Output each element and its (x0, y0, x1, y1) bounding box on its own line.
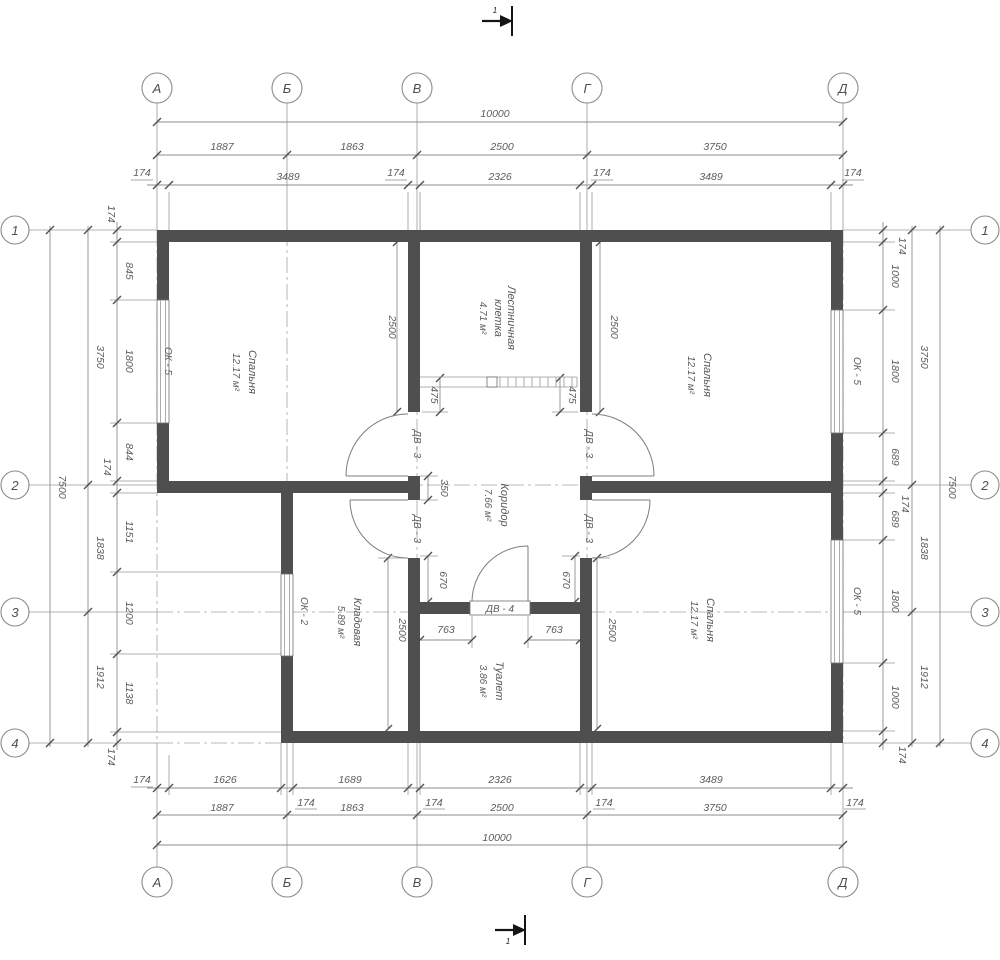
dim-label: 174 (133, 774, 151, 786)
room-label-bedroom-br: Спальня 12.17 м² (688, 598, 716, 642)
dim-label: 1800 (123, 349, 135, 373)
dim-label: 174 (595, 797, 613, 809)
dim-label: 1151 (123, 521, 135, 544)
dim-label: 10000 (480, 108, 509, 120)
axis-bubble-label: Б (283, 875, 292, 890)
dim-label: 1000 (889, 264, 901, 288)
dim-label: 1800 (889, 589, 901, 613)
room-label-bedroom-tr: Спальня 12.17 м² (685, 353, 713, 397)
room-area: 7.66 м² (482, 489, 493, 522)
axis-bubble-label: А (152, 81, 162, 96)
room-name: Туалет (493, 661, 505, 700)
axis-bubble-label: Б (283, 81, 292, 96)
wall-divider-right (592, 481, 831, 493)
dim-label: 174 (846, 797, 864, 809)
room-area: 12.17 м² (688, 601, 699, 640)
dim-label: 3489 (276, 171, 300, 183)
dim-label: 2500 (489, 141, 514, 153)
dim-label: 2500 (608, 314, 620, 339)
axis-bubble-label: 3 (11, 605, 19, 620)
dim-label: 7500 (56, 475, 68, 499)
wall-right-2 (831, 433, 843, 540)
dim-label: 350 (438, 479, 450, 497)
window-storage-ok2 (281, 574, 293, 656)
room-name: Коридор (498, 483, 510, 526)
wall-g-upper (580, 242, 592, 412)
stairs-symbol (420, 377, 577, 387)
axis-bubble-label: А (152, 875, 162, 890)
axis-bubble-label: 3 (981, 605, 989, 620)
axis-bubble-label: В (413, 81, 422, 96)
room-name: Лестничная (505, 285, 517, 350)
dim-label: 1863 (340, 141, 364, 153)
wall-v-stub (408, 476, 420, 500)
dim-label: 174 (133, 167, 151, 179)
dim-label: 174 (101, 458, 113, 476)
axis-bubble-label: 1 (11, 223, 18, 238)
axis-circles-right: 1 2 3 4 (971, 216, 999, 757)
floor-plan-page: 174 3489 174 2326 174 3489 174 1887 1863… (0, 0, 1000, 955)
axis-bubble-label: 2 (980, 478, 989, 493)
dim-label: 2500 (489, 802, 514, 814)
dim-label: 1912 (94, 665, 106, 689)
axis-bubble-label: Д (836, 81, 847, 96)
window-right-bottom-ok5 (831, 540, 843, 663)
dim-label: 174 (896, 746, 908, 764)
dim-label: 1200 (123, 601, 135, 625)
dim-label: 1800 (889, 359, 901, 383)
dim-label: 1838 (918, 536, 930, 560)
axis-circles-left: 1 2 3 4 (1, 216, 29, 757)
wall-divider-left (157, 481, 420, 493)
dim-label: 174 (387, 167, 405, 179)
axis-bubble-label: Д (836, 875, 847, 890)
dim-label: 3750 (703, 141, 727, 153)
section-number: 1 (493, 6, 497, 15)
room-area: 12.17 м² (685, 356, 696, 395)
axis-bubble-label: 4 (11, 736, 18, 751)
dim-label: 2500 (606, 617, 618, 642)
wall-right-1 (831, 230, 843, 310)
room-label-stairwell: Лестничная клетка 4.71 м² (477, 285, 517, 350)
wall-bottom (281, 731, 843, 743)
dim-label: 670 (560, 571, 572, 589)
wall-toilet-right (528, 602, 580, 614)
room-area: 4.71 м² (477, 302, 488, 335)
dim-label: 10000 (482, 832, 511, 844)
axis-bubble-label: 1 (981, 223, 988, 238)
window-tag: ОК - 5 (851, 587, 862, 616)
axis-bubble-label: Г (583, 81, 591, 96)
dimensions-left: 174 845 1800 844 174 1151 1200 1138 174 … (56, 205, 135, 766)
room-name: Спальня (701, 353, 713, 397)
room-label-storage: Кладовая 5.89 м² (335, 598, 363, 647)
axis-bubble-label: 2 (10, 478, 19, 493)
dim-label: 689 (889, 510, 901, 528)
dim-label: 2500 (396, 617, 408, 642)
door-tag: ДВ - 3 (411, 514, 422, 544)
axis-bubble-label: 4 (981, 736, 988, 751)
axis-circles-top: А Б В Г Д (142, 73, 858, 103)
dim-label: 1000 (889, 685, 901, 709)
window-tag: ОК - 5 (851, 357, 862, 386)
axis-bubble-label: В (413, 875, 422, 890)
axis-bubble-label: Г (583, 875, 591, 890)
door-tag: ДВ - 3 (583, 429, 594, 459)
dim-label: 689 (889, 448, 901, 466)
room-label-bedroom-tl: Спальня 12.17 м² (230, 350, 258, 394)
window-tag: ОК - 2 (298, 597, 309, 626)
dim-label: 174 (105, 748, 117, 766)
dimensions-bottom: 174 1626 174 1689 174 2326 174 3489 174 … (133, 774, 864, 844)
dim-label: 3489 (699, 774, 723, 786)
door-tag: ДВ - 3 (583, 514, 594, 544)
dim-label: 3750 (703, 802, 727, 814)
window-right-top-ok5 (831, 310, 843, 433)
dim-label: 1138 (123, 682, 135, 705)
dim-label: 174 (425, 797, 443, 809)
wall-top (157, 230, 843, 242)
dim-label: 2326 (487, 774, 512, 786)
door-tag: ДВ - 3 (411, 429, 422, 459)
wall-toilet-left (420, 602, 472, 614)
stair-start-square (487, 377, 497, 387)
section-mark-bottom: 1 (495, 915, 526, 946)
section-number: 1 (506, 937, 510, 946)
wall-b-upper (281, 493, 293, 574)
stair-treads (500, 377, 572, 387)
dim-label: 475 (428, 386, 440, 404)
wall-left-upper (157, 230, 169, 300)
dimensions-top: 174 3489 174 2326 174 3489 174 1887 1863… (133, 108, 862, 183)
dim-label: 7500 (946, 475, 958, 499)
dim-label: 763 (545, 624, 563, 636)
room-name: Спальня (246, 350, 258, 394)
wall-v-upper (408, 242, 420, 412)
dim-label: 1626 (213, 774, 237, 786)
axis-circles-bottom: А Б В Г Д (142, 867, 858, 897)
room-area: 3.86 м² (477, 665, 488, 698)
wall-g-stub (580, 476, 592, 500)
dim-label: 1863 (340, 802, 364, 814)
room-name: клетка (492, 299, 504, 337)
dim-label: 1887 (210, 141, 235, 153)
window-tag: ОК - 5 (162, 347, 173, 376)
room-name: Кладовая (351, 598, 363, 647)
dim-label: 1887 (210, 802, 235, 814)
wall-v-lower (408, 558, 420, 731)
room-name: Спальня (704, 598, 716, 642)
dim-label: 174 (896, 237, 908, 255)
stair-flight-lines (420, 377, 577, 387)
room-area: 12.17 м² (230, 353, 241, 392)
dim-label: 844 (123, 443, 135, 461)
dim-label: 174 (297, 797, 315, 809)
dim-label: 845 (123, 262, 135, 280)
dim-label: 3750 (94, 345, 106, 369)
dim-label: 1912 (918, 665, 930, 689)
dim-label: 2500 (386, 314, 398, 339)
dim-label: 1838 (94, 536, 106, 560)
floor-plan-canvas: 174 3489 174 2326 174 3489 174 1887 1863… (0, 0, 1000, 955)
room-label-toilet: Туалет 3.86 м² (477, 661, 505, 700)
dim-label: 763 (437, 624, 455, 636)
dim-label: 2326 (487, 171, 512, 183)
wall-b-lower (281, 656, 293, 731)
dim-label: 670 (437, 571, 449, 589)
wall-g-lower (580, 558, 592, 731)
dimensions-right: 174 1000 1800 689 174 689 1800 1000 174 … (889, 237, 958, 764)
room-label-corridor: Коридор 7.66 м² (482, 483, 510, 526)
room-area: 5.89 м² (335, 606, 346, 639)
door-tag: ДВ - 4 (485, 604, 515, 615)
dim-label: 174 (844, 167, 862, 179)
dim-label: 3489 (699, 171, 723, 183)
dim-label: 1689 (338, 774, 362, 786)
section-mark-top: 1 (482, 6, 513, 36)
dim-label: 3750 (918, 345, 930, 369)
dim-label: 174 (593, 167, 611, 179)
dim-label: 174 (105, 205, 117, 223)
dim-label: 475 (566, 386, 578, 404)
